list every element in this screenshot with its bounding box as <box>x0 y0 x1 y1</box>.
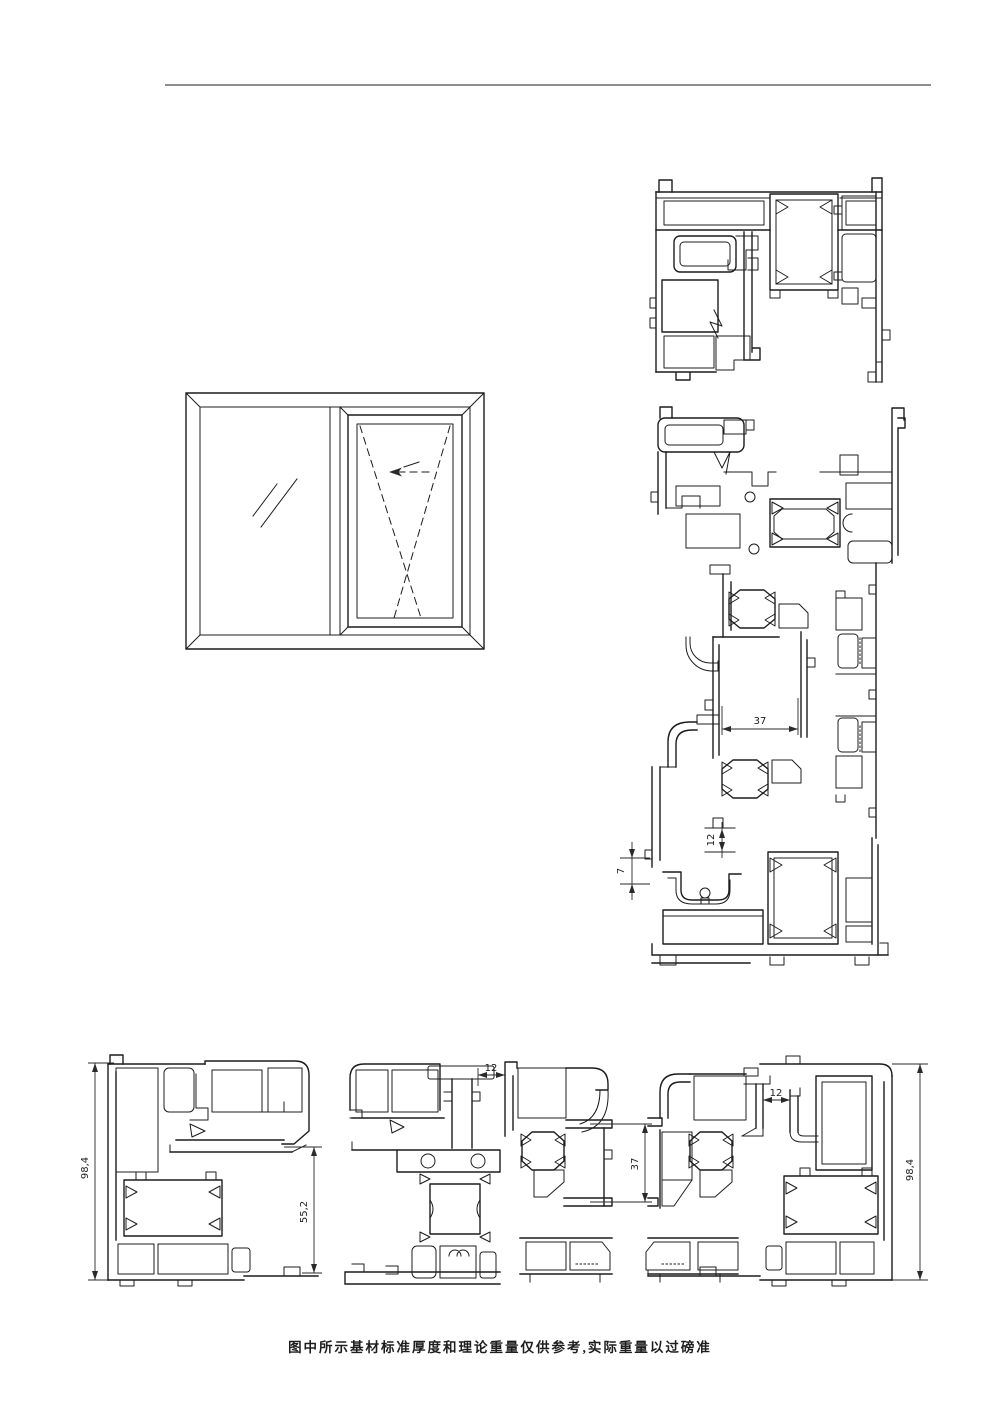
dim-12-middle-label: 12 <box>485 1063 498 1074</box>
dim-37-vertical-section: 37 <box>722 698 798 735</box>
sash-miters <box>340 407 470 635</box>
footer-note: 图中所示基材标准厚度和理论重量仅供参考,实际重量以过磅准 <box>250 1336 750 1356</box>
dim-12-label: 12 <box>706 834 717 847</box>
dim-984-label: 98,4 <box>80 1157 91 1179</box>
dim-12-right-label: 12 <box>770 1088 783 1099</box>
sash-outer <box>348 415 462 627</box>
sash-inner <box>357 424 453 618</box>
horizontal-section-middle: 12 <box>345 1062 652 1284</box>
vertical-section-main: 37 12 7 <box>616 407 905 965</box>
frame-miters <box>186 393 484 649</box>
dim-552-label: 55,2 <box>299 1201 310 1223</box>
swing-arrow-tick <box>404 462 419 467</box>
technical-drawing-canvas: 37 12 7 <box>0 0 1000 1415</box>
window-elevation <box>186 393 484 649</box>
frame-outer <box>186 393 484 649</box>
glass-mark <box>253 479 297 527</box>
dim-984-left: 98,4 <box>80 1063 114 1280</box>
dim-37-label: 37 <box>754 716 767 727</box>
pane-divider <box>330 407 340 635</box>
frame-inner <box>200 407 470 635</box>
dim-37-middle-label: 37 <box>630 1158 641 1171</box>
dim-552-left: 55,2 <box>299 1147 322 1273</box>
dim-7-label: 7 <box>616 868 627 874</box>
dim-37-middle: 37 <box>590 1124 652 1202</box>
dim-12-right: 12 <box>763 1088 790 1108</box>
opening-symbol <box>360 426 450 618</box>
dim-984-right-label: 98,4 <box>905 1159 916 1181</box>
catalog-page: 37 12 7 <box>0 0 1000 1415</box>
horizontal-section-left: 98,4 <box>80 1055 322 1286</box>
vertical-section-head <box>650 178 890 382</box>
dim-984-right: 98,4 <box>892 1064 928 1280</box>
horizontal-section-right: 12 <box>646 1056 928 1286</box>
dim-12-vertical-section: 12 <box>706 822 725 858</box>
